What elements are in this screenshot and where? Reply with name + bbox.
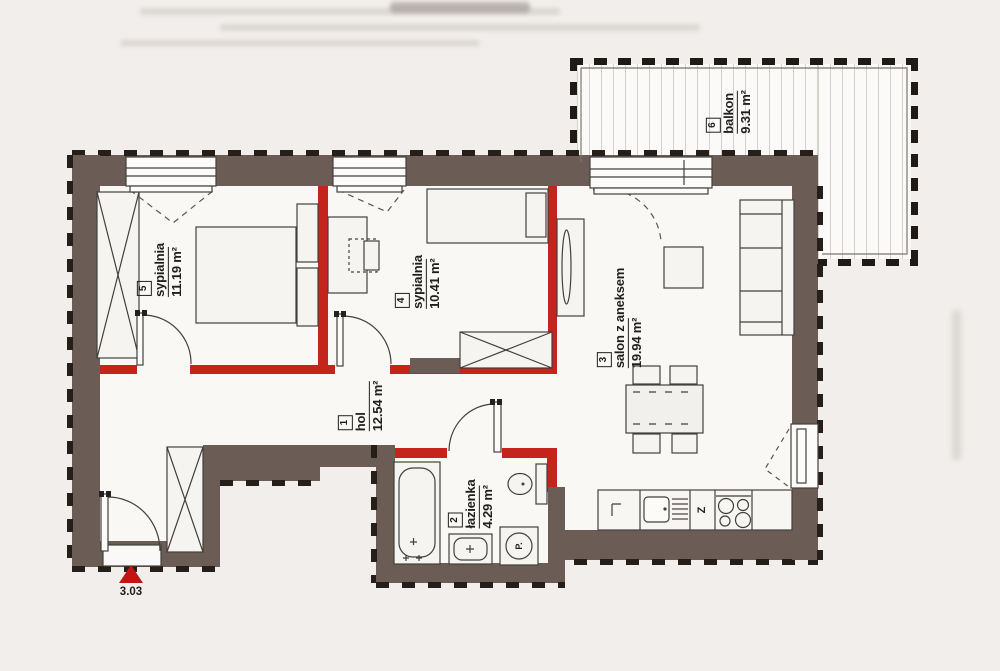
balcony-door: [590, 157, 712, 194]
room-number: 1: [338, 415, 353, 430]
room-label-sypialnia4: 4 sypialnia 10.41 m²: [395, 255, 441, 309]
room-name: salon z aneksem: [613, 268, 627, 368]
door-swing-dashes-balcony: [593, 189, 661, 241]
door-bedroom5: [135, 310, 191, 365]
dishwasher-label: Z: [696, 507, 708, 514]
room-area: 9.31 m²: [737, 90, 753, 133]
room-area: 19.94 m²: [628, 318, 644, 368]
double-bed: [196, 204, 318, 326]
door-bedroom4: [334, 311, 391, 366]
wardrobe: [167, 447, 203, 552]
floor-plan-page: 1 hol 12.54 m² 2 łazienka 4.29 m² 3 salo…: [0, 0, 1000, 671]
room-number: 3: [597, 352, 612, 367]
room-number: 4: [395, 293, 410, 308]
room-name: balkon: [722, 93, 736, 134]
tv-cabinet: [557, 219, 584, 316]
door-bathroom: [449, 399, 502, 452]
sofa: [740, 200, 794, 335]
toilet: [508, 464, 547, 504]
room-name: hol: [354, 412, 368, 431]
single-bed: [427, 189, 548, 243]
room-area: 11.19 m²: [168, 247, 184, 297]
entrance-door: [99, 491, 161, 566]
bathroom-sink: [449, 534, 492, 564]
room-label-balkon: 6 balkon 9.31 m²: [706, 90, 752, 133]
entrance-level-marker: 3.03: [120, 586, 142, 598]
washing-machine-label: P.: [514, 542, 524, 549]
coffee-table: [664, 247, 703, 288]
window-bedroom5: [126, 157, 216, 192]
window-swing-dashes: [765, 429, 789, 487]
window-bedroom4: [333, 157, 406, 192]
room-label-lazienka: 2 łazienka 4.29 m²: [448, 480, 494, 529]
window-swing-dashes: [130, 190, 214, 223]
plan-linework: [0, 0, 1000, 671]
room-name: sypialnia: [153, 243, 167, 297]
desk: [328, 217, 379, 293]
entrance-arrow-icon: [119, 565, 143, 583]
room-number: 6: [706, 118, 721, 133]
room-area: 4.29 m²: [479, 485, 495, 528]
room-area: 10.41 m²: [426, 258, 442, 308]
room-name: łazienka: [464, 480, 478, 529]
window-swing-dashes: [338, 190, 404, 212]
kitchen-counter: [598, 490, 792, 530]
bathtub: [394, 462, 440, 564]
room-number: 2: [448, 513, 463, 528]
room-label-salon: 3 salon z aneksem 19.94 m²: [597, 268, 643, 368]
wardrobe: [460, 332, 552, 368]
room-area: 12.54 m²: [369, 381, 385, 431]
wardrobe: [97, 192, 139, 358]
room-name: sypialnia: [411, 255, 425, 309]
window-salon-right: [791, 424, 818, 488]
room-label-hol: 1 hol 12.54 m²: [338, 381, 384, 431]
room-number: 5: [137, 281, 152, 296]
room-label-sypialnia5: 5 sypialnia 11.19 m²: [137, 243, 183, 297]
dining-table: [626, 366, 703, 453]
